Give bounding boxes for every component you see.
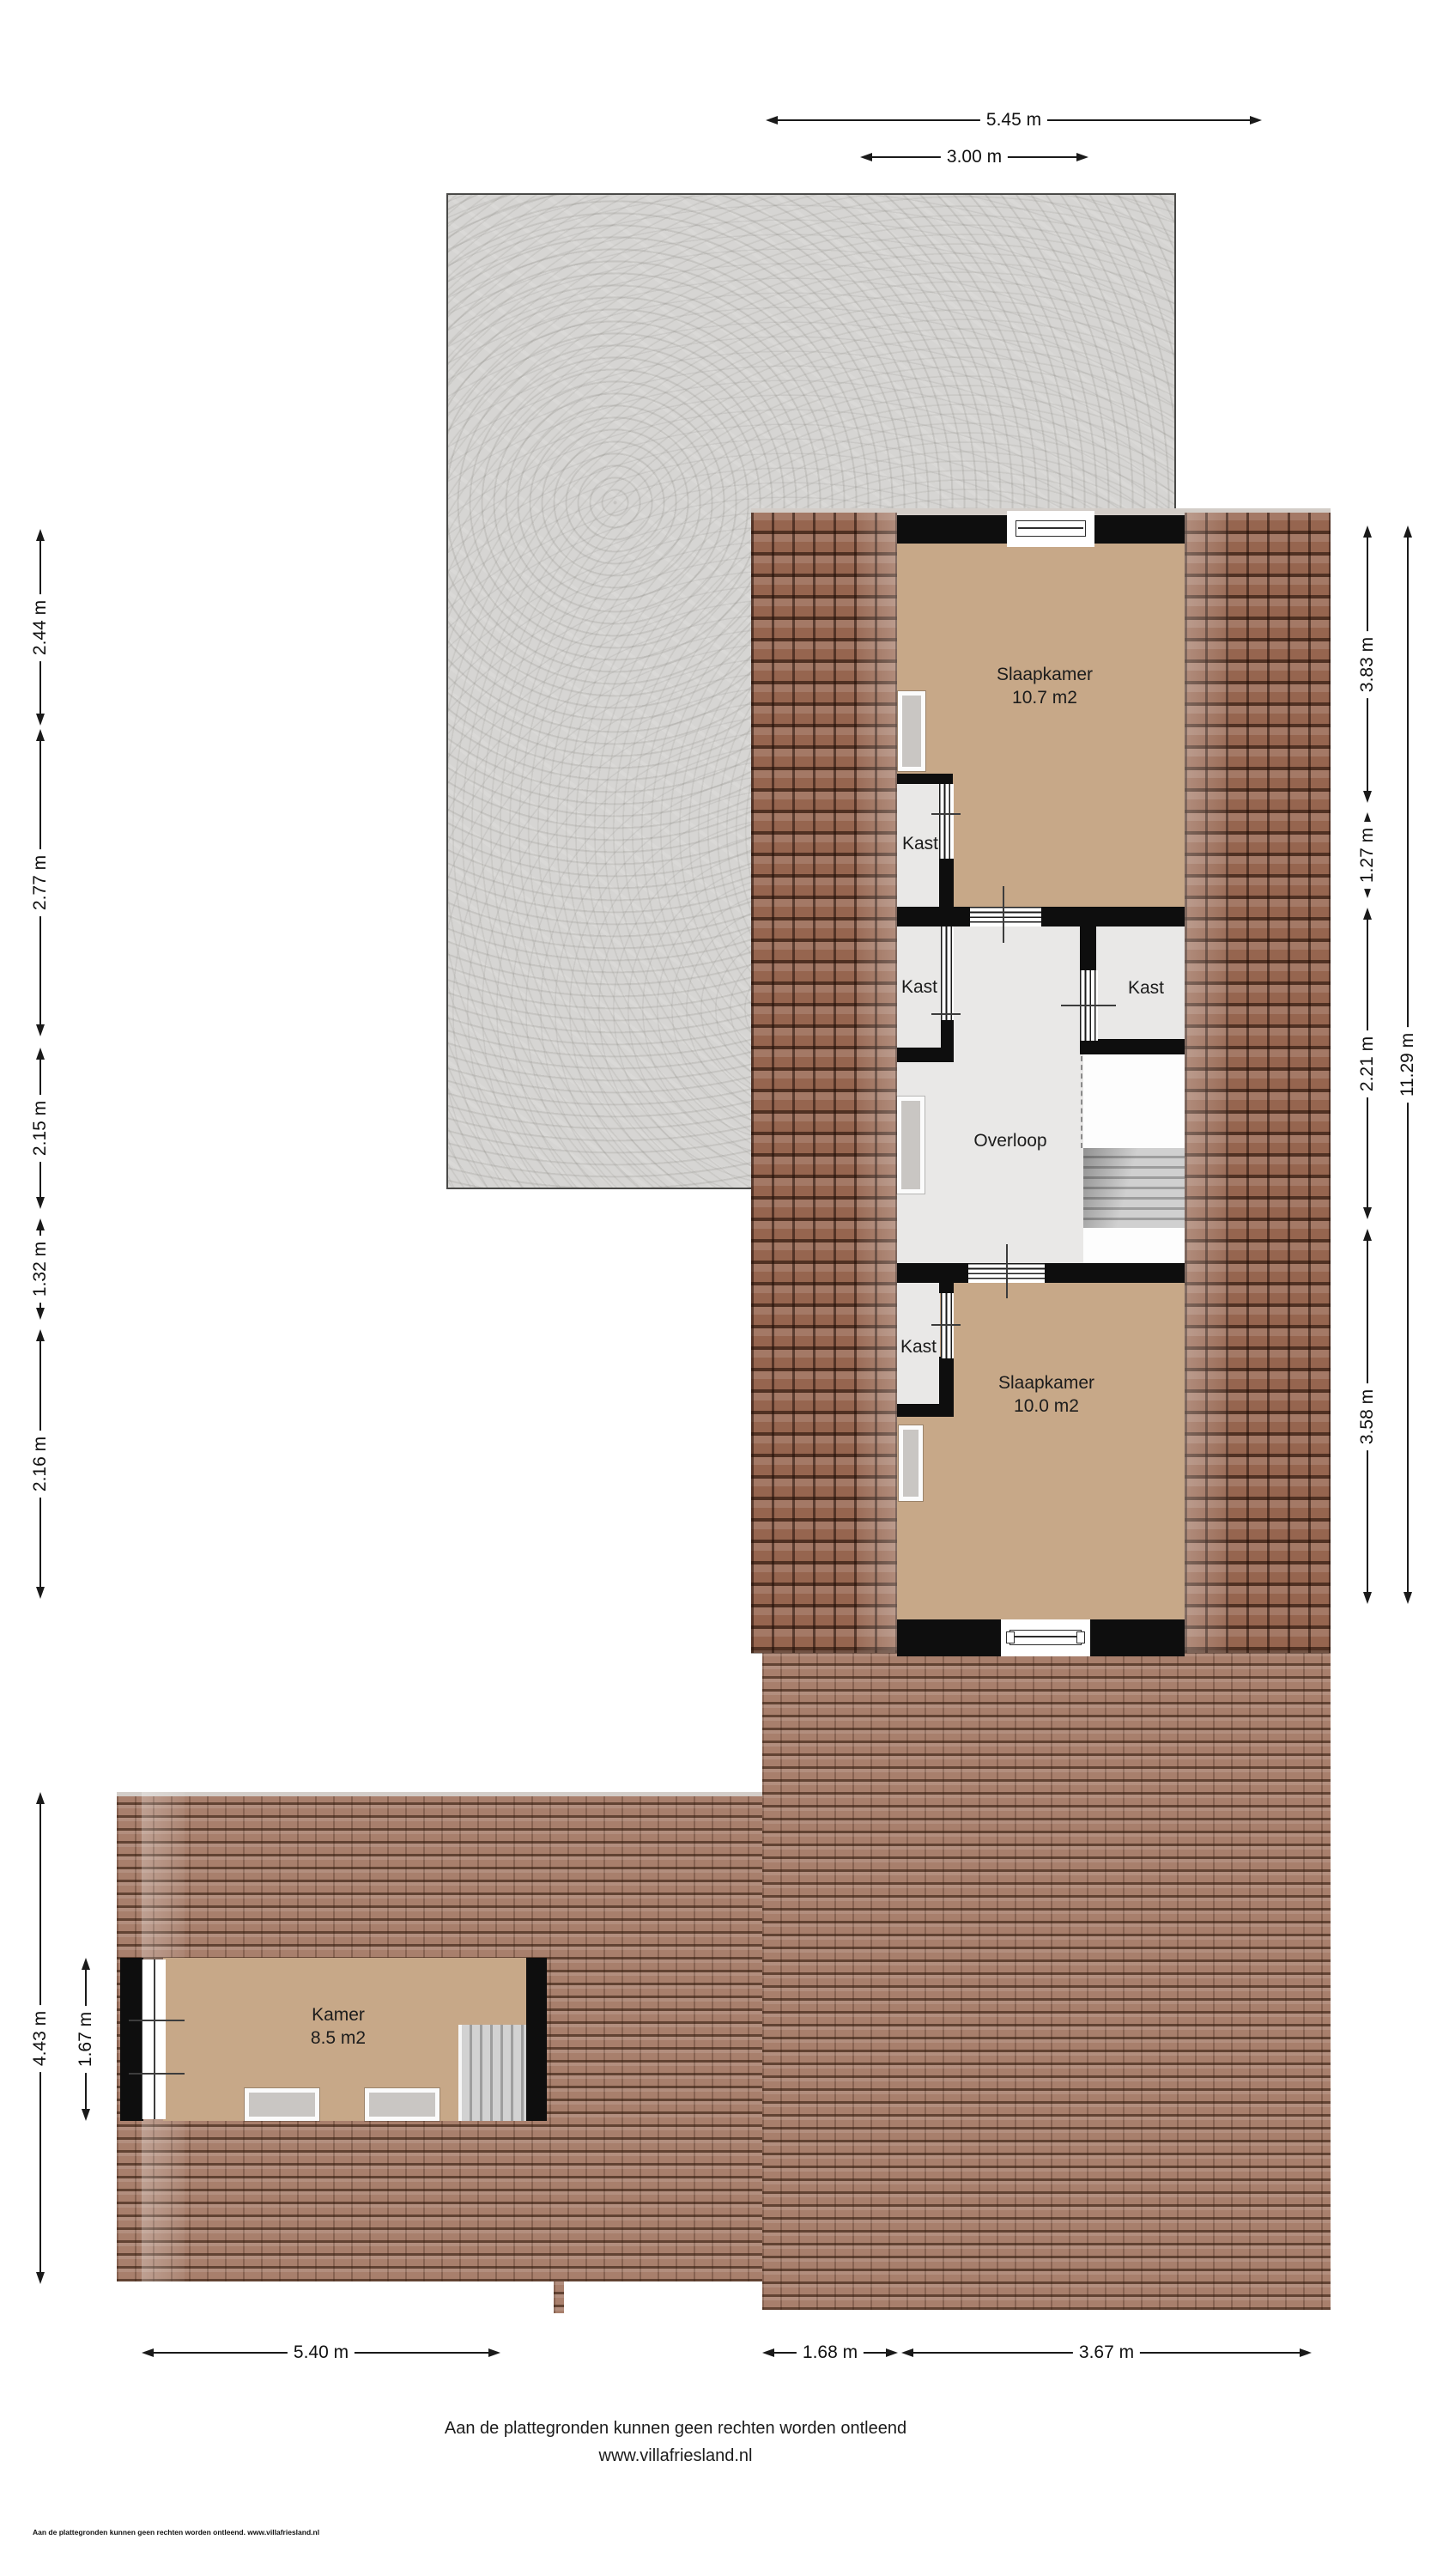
room-name: Kast — [876, 1335, 961, 1358]
radiator — [898, 691, 925, 771]
arrow-up-icon — [36, 729, 45, 741]
arrow-up-icon — [1363, 526, 1372, 538]
door-axis — [1003, 886, 1004, 943]
door-axis — [931, 1013, 961, 1015]
room-label-kamer: Kamer 8.5 m2 — [252, 2003, 424, 2050]
door-axis — [931, 813, 961, 815]
arrow-down-icon — [82, 2109, 90, 2121]
arrow-down-icon — [36, 2272, 45, 2284]
kamer-window-tick — [129, 2073, 185, 2075]
arrow-down-icon — [1363, 1207, 1372, 1219]
dim-left-277: 2.77 m — [30, 729, 51, 1036]
arrow-down-icon — [1363, 791, 1372, 803]
radiator — [897, 1097, 925, 1194]
footer-disclaimer: Aan de plattegronden kunnen geen rechten… — [332, 2415, 1019, 2442]
dim-bottom-540: 5.40 m — [142, 2342, 500, 2363]
dim-left-215: 2.15 m — [30, 1048, 51, 1209]
arrow-up-icon — [36, 1048, 45, 1060]
dim-label: 2.21 m — [1357, 1030, 1378, 1097]
arrow-up-icon — [82, 1958, 90, 1970]
dim-label: 1.68 m — [797, 2342, 864, 2363]
wall — [939, 857, 954, 908]
arrow-down-icon — [36, 1587, 45, 1599]
dim-label: 2.15 m — [30, 1095, 51, 1162]
stairs-kamer — [458, 2025, 526, 2121]
room-name: Overloop — [925, 1129, 1096, 1152]
radiator — [899, 1425, 923, 1501]
dim-label: 5.45 m — [980, 110, 1047, 131]
kamer-skylight — [365, 2088, 440, 2121]
dim-left-216: 2.16 m — [30, 1329, 51, 1599]
window-bottom-mullion — [1012, 1636, 1079, 1637]
wall — [939, 1283, 954, 1293]
kamer-window-tick — [129, 2020, 185, 2021]
dim-left-132: 1.32 m — [30, 1218, 51, 1320]
room-name: Slaapkamer — [943, 1371, 1149, 1394]
room-area: 8.5 m2 — [252, 2026, 424, 2050]
dim-label: 2.16 m — [30, 1431, 51, 1498]
room-name: Slaapkamer — [942, 663, 1148, 686]
arrow-down-icon — [1363, 1592, 1372, 1604]
floor-plan: Slaapkamer 10.7 m2 Kast Kast Kast Overlo… — [0, 0, 1449, 2576]
arrow-down-icon — [36, 1024, 45, 1036]
room-label-kast1: Kast — [877, 832, 963, 855]
arrow-right-icon — [886, 2348, 898, 2357]
arrow-left-icon — [762, 2348, 774, 2357]
lower-roof — [762, 1653, 1331, 2310]
dim-bottom-367: 3.67 m — [901, 2342, 1312, 2363]
arrow-up-icon — [36, 1792, 45, 1804]
dim-label: 1.67 m — [76, 2006, 96, 2073]
wall — [941, 1018, 954, 1048]
wall — [526, 1958, 547, 2121]
dim-kamer-443: 4.43 m — [30, 1792, 51, 2284]
arrow-up-icon — [36, 1218, 45, 1230]
dim-right-221: 2.21 m — [1357, 908, 1378, 1219]
arrow-down-icon — [1404, 1592, 1412, 1604]
window-bottom-tab — [1076, 1631, 1085, 1643]
arrow-left-icon — [860, 153, 872, 161]
dim-kamer-167: 1.67 m — [76, 1958, 96, 2121]
room-name: Kamer — [252, 2003, 424, 2026]
wall — [897, 907, 970, 927]
door-slaapkamer-top — [970, 907, 1041, 927]
arrow-left-icon — [766, 116, 778, 125]
lower-roof-corner — [554, 2281, 564, 2313]
upper-roof-left-highlight — [857, 513, 897, 1653]
wall — [1088, 1619, 1185, 1656]
wall — [897, 774, 953, 784]
door-axis — [931, 1324, 961, 1326]
wall — [897, 1619, 1003, 1656]
arrow-left-icon — [901, 2348, 913, 2357]
room-area: 10.7 m2 — [942, 686, 1148, 709]
wall — [897, 515, 1009, 544]
room-label-slaapkamer-top: Slaapkamer 10.7 m2 — [942, 663, 1148, 709]
dim-label: 11.29 m — [1397, 1027, 1418, 1103]
arrow-up-icon — [1363, 908, 1372, 920]
dim-right-383: 3.83 m — [1357, 526, 1378, 803]
arrow-up-icon — [36, 1329, 45, 1341]
dim-top-545: 5.45 m — [766, 110, 1262, 131]
room-label-slaapkamer-bottom: Slaapkamer 10.0 m2 — [943, 1371, 1149, 1418]
dim-label: 5.40 m — [288, 2342, 355, 2363]
door-kast2 — [941, 927, 954, 1020]
stairs-upper — [1083, 1148, 1185, 1228]
upper-roof-right-highlight — [1185, 513, 1229, 1653]
room-name: Kast — [1103, 976, 1189, 999]
wall — [1080, 927, 1096, 970]
dim-label: 3.83 m — [1357, 630, 1378, 697]
door-axis — [1061, 1005, 1116, 1006]
wall — [1093, 515, 1185, 544]
room-name: Kast — [876, 975, 962, 999]
arrow-up-icon — [1404, 526, 1412, 538]
door-axis — [1006, 1244, 1008, 1298]
room-label-kast2: Kast — [876, 975, 962, 999]
dim-right-127: 1.27 m — [1357, 812, 1378, 898]
arrow-down-icon — [36, 1308, 45, 1320]
wall — [897, 1048, 954, 1062]
arrow-right-icon — [1250, 116, 1262, 125]
window-bottom-frame — [1009, 1630, 1082, 1645]
arrow-up-icon — [1363, 1229, 1372, 1241]
kamer-skylight — [245, 2088, 319, 2121]
dim-right-1129: 11.29 m — [1397, 526, 1418, 1604]
kamer-window-glazing — [154, 1959, 155, 2119]
wall — [897, 1263, 968, 1283]
dim-label: 3.58 m — [1357, 1382, 1378, 1449]
arrow-down-icon — [36, 714, 45, 726]
dim-label: 3.67 m — [1073, 2342, 1140, 2363]
arrow-right-icon — [1300, 2348, 1312, 2357]
dim-label: 2.44 m — [30, 593, 51, 660]
room-label-kast4: Kast — [876, 1335, 961, 1358]
kamer-roof-ridge — [117, 1792, 762, 1796]
room-label-kast3: Kast — [1103, 976, 1189, 999]
dim-label: 1.27 m — [1357, 822, 1378, 889]
arrow-right-icon — [488, 2348, 500, 2357]
dim-label: 2.77 m — [30, 849, 51, 916]
small-disclaimer: Aan de plattegronden kunnen geen rechten… — [33, 2528, 319, 2537]
wall — [120, 1958, 143, 2121]
dim-bottom-168: 1.68 m — [762, 2342, 898, 2363]
arrow-down-icon — [36, 1197, 45, 1209]
dim-top-300: 3.00 m — [860, 147, 1088, 167]
arrow-up-icon — [36, 529, 45, 541]
room-area: 10.0 m2 — [943, 1394, 1149, 1418]
room-name: Kast — [877, 832, 963, 855]
footer: Aan de plattegronden kunnen geen rechten… — [332, 2415, 1019, 2470]
dim-label: 4.43 m — [30, 2004, 51, 2071]
wall — [1041, 907, 1185, 927]
arrow-right-icon — [1076, 153, 1088, 161]
wall — [1080, 1039, 1185, 1054]
dim-label: 1.32 m — [30, 1236, 51, 1303]
wall — [1045, 1263, 1185, 1283]
room-label-overloop: Overloop — [925, 1129, 1096, 1152]
dim-left-244: 2.44 m — [30, 529, 51, 726]
arrow-left-icon — [142, 2348, 154, 2357]
dim-right-358: 3.58 m — [1357, 1229, 1378, 1604]
window-bottom-tab — [1006, 1631, 1015, 1643]
window-top-mullion — [1018, 527, 1083, 529]
dim-label: 3.00 m — [941, 147, 1008, 167]
footer-url: www.villafriesland.nl — [332, 2442, 1019, 2470]
